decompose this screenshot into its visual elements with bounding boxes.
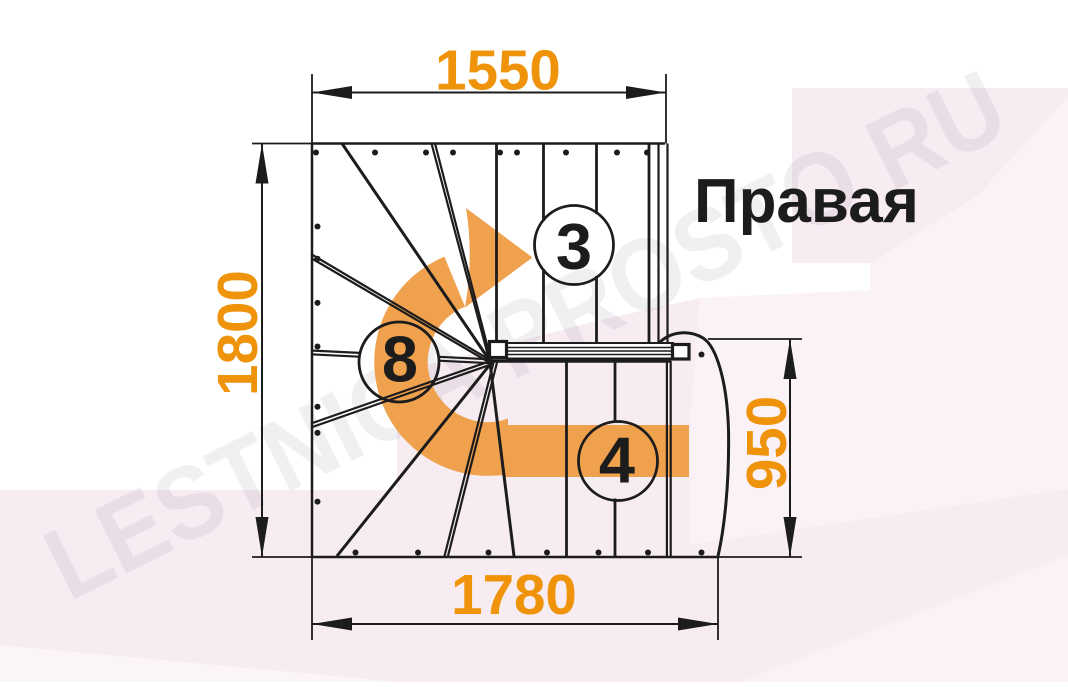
svg-text:950: 950 — [735, 396, 798, 490]
svg-text:1780: 1780 — [451, 563, 577, 626]
svg-text:1550: 1550 — [435, 39, 561, 102]
svg-text:4: 4 — [599, 424, 635, 497]
svg-text:3: 3 — [556, 210, 592, 283]
svg-text:8: 8 — [382, 323, 418, 396]
svg-text:1800: 1800 — [206, 270, 269, 396]
svg-text:Правая: Правая — [694, 167, 919, 236]
